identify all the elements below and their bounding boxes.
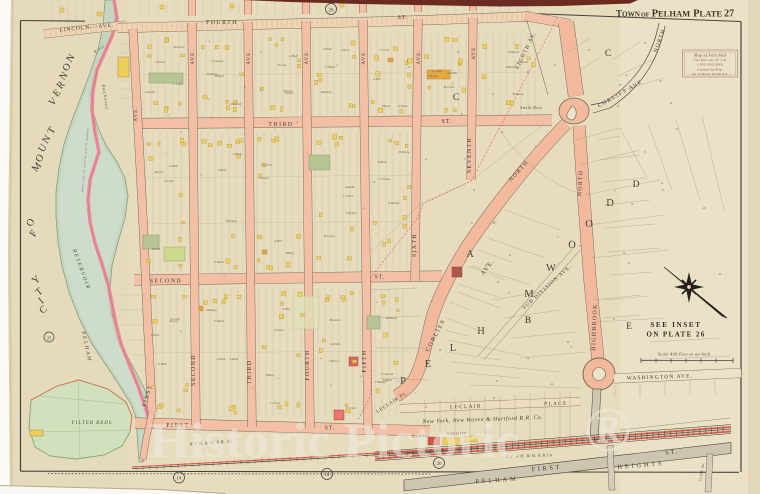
svg-text:C: C: [453, 93, 459, 103]
svg-text:T.Peck: T.Peck: [285, 91, 294, 95]
svg-text:ST.: ST.: [398, 15, 409, 21]
svg-text:AVE.: AVE.: [190, 49, 196, 64]
svg-text:G.Hall: G.Hall: [289, 54, 298, 58]
svg-text:F.Wood: F.Wood: [213, 319, 224, 323]
svg-text:AVE.: AVE.: [304, 49, 310, 64]
svg-text:FOURTH: FOURTH: [305, 349, 311, 380]
svg-text:M.Lewis: M.Lewis: [323, 234, 336, 238]
svg-text:E.Dean: E.Dean: [397, 104, 408, 108]
svg-text:L: L: [450, 343, 456, 354]
svg-text:C.Clark: C.Clark: [432, 69, 443, 73]
svg-text:ST.: ST.: [442, 119, 453, 125]
svg-text:W.Reid: W.Reid: [215, 74, 224, 78]
svg-text:F.Wood: F.Wood: [324, 65, 335, 69]
svg-text:C.Ford: C.Ford: [379, 48, 389, 52]
svg-text:M: M: [524, 289, 534, 300]
svg-text:D.Case: D.Case: [169, 317, 180, 321]
svg-text:AVE.: AVE.: [361, 49, 367, 64]
svg-text:Engineering Bldg.: Engineering Bldg.: [696, 67, 722, 71]
svg-text:M.Lewis: M.Lewis: [329, 318, 342, 322]
svg-text:J.Coutant: J.Coutant: [516, 60, 529, 64]
svg-text:SECOND: SECOND: [150, 279, 182, 285]
svg-text:W.Reid: W.Reid: [506, 65, 515, 69]
svg-text:THIRD: THIRD: [247, 360, 253, 385]
svg-text:C.Clark: C.Clark: [346, 406, 357, 410]
svg-text:A.Hill: A.Hill: [281, 307, 290, 311]
svg-text:AVE.: AVE.: [246, 49, 252, 64]
svg-text:AVE.: AVE.: [471, 44, 477, 59]
svg-text:J.Brown: J.Brown: [329, 359, 340, 363]
svg-text:A.Hill: A.Hill: [273, 239, 282, 243]
svg-text:M.Lewis: M.Lewis: [443, 85, 456, 89]
svg-text:®: ®: [584, 395, 631, 465]
svg-text:E.Dean: E.Dean: [273, 328, 284, 332]
svg-text:J.Bonney: J.Bonney: [205, 308, 217, 312]
svg-text:F.Wood: F.Wood: [213, 260, 224, 264]
svg-text:M.Lewis: M.Lewis: [173, 45, 186, 49]
svg-text:E.Barker: E.Barker: [387, 201, 400, 205]
svg-text:J.Coutant: J.Coutant: [211, 59, 224, 63]
svg-text:R.Lyon: R.Lyon: [153, 170, 163, 174]
svg-text:H.Young: H.Young: [512, 92, 524, 96]
svg-text:J.Brown: J.Brown: [428, 74, 439, 78]
svg-text:D.Case: D.Case: [163, 179, 174, 183]
svg-text:H.Young: H.Young: [385, 316, 397, 320]
svg-text:L.Platt: L.Platt: [232, 152, 242, 156]
svg-text:SECOND: SECOND: [191, 354, 197, 386]
svg-text:E: E: [626, 322, 632, 332]
svg-text:P.Berg: P.Berg: [265, 373, 275, 377]
svg-text:FOURTH: FOURTH: [206, 20, 238, 26]
svg-text:PLACE: PLACE: [544, 401, 568, 408]
svg-text:J.Coutant: J.Coutant: [381, 372, 394, 376]
svg-text:P.Berg: P.Berg: [285, 251, 295, 255]
svg-text:H.Young: H.Young: [398, 150, 410, 154]
svg-text:O: O: [585, 219, 593, 230]
svg-text:D: D: [633, 180, 640, 190]
svg-text:W.Reid: W.Reid: [383, 378, 392, 382]
svg-text:A.Smith: A.Smith: [344, 185, 355, 189]
svg-text:J.Brown: J.Brown: [346, 211, 357, 215]
svg-text:TOWNOFPELHAMPLATE27: TOWNOFPELHAMPLATE27: [616, 9, 734, 20]
svg-text:ST.: ST.: [665, 448, 679, 456]
svg-text:SEE INSET: SEE INSET: [650, 321, 701, 329]
svg-text:L.Platt: L.Platt: [216, 357, 226, 361]
svg-text:C.Clark: C.Clark: [343, 194, 354, 198]
svg-text:SEVENTH: SEVENTH: [467, 137, 473, 173]
svg-text:A.Smith: A.Smith: [144, 90, 155, 94]
svg-text:G.Hall: G.Hall: [169, 164, 178, 168]
svg-text:E.Barker: E.Barker: [229, 102, 242, 106]
svg-text:C: C: [605, 49, 611, 59]
svg-text:P.Berg: P.Berg: [381, 104, 391, 108]
svg-text:J.Brown: J.Brown: [155, 60, 166, 64]
svg-text:W.Reid: W.Reid: [378, 160, 387, 164]
svg-text:E: E: [425, 359, 431, 370]
svg-text:J.Bonney: J.Bonney: [320, 90, 332, 94]
svg-text:B: B: [525, 316, 531, 326]
svg-text:J.Coutant: J.Coutant: [378, 177, 391, 181]
svg-text:T.Peck: T.Peck: [152, 247, 161, 251]
svg-text:E.Barker: E.Barker: [507, 50, 520, 54]
svg-text:25: 25: [47, 336, 52, 341]
svg-text:26: 26: [329, 9, 335, 14]
svg-text:J.Bonney: J.Bonney: [225, 219, 237, 223]
svg-text:S.Hunt: S.Hunt: [218, 168, 227, 172]
svg-text:from Mon. Ave. for C.P.: from Mon. Ave. for C.P.: [694, 58, 727, 62]
svg-text:C.Ford: C.Ford: [262, 163, 272, 167]
svg-text:D.Case: D.Case: [276, 63, 287, 67]
svg-text:D: D: [606, 198, 614, 209]
svg-text:FILTER BEDS: FILTER BEDS: [71, 421, 113, 426]
svg-text:ST.: ST.: [375, 275, 386, 281]
svg-text:FIFTH: FIFTH: [362, 349, 368, 372]
svg-text:Map of Fairchild: Map of Fairchild: [693, 53, 727, 58]
svg-text:G.Hall: G.Hall: [158, 362, 167, 366]
svg-text:THIRD: THIRD: [268, 122, 293, 128]
svg-text:LECLAIR: LECLAIR: [450, 403, 482, 410]
svg-text:AVE.: AVE.: [133, 106, 139, 121]
svg-text:Op. of Mount Vernon N.Y.: Op. of Mount Vernon N.Y.: [692, 72, 728, 76]
svg-text:Smith Bros.: Smith Bros.: [520, 105, 544, 110]
svg-text:P: P: [400, 376, 406, 387]
svg-text:Historic Pictoric: Historic Pictoric: [149, 412, 519, 468]
svg-text:S.Hunt: S.Hunt: [230, 357, 239, 361]
svg-text:ON PLATE 26: ON PLATE 26: [646, 331, 705, 339]
svg-text:14: 14: [177, 477, 183, 482]
svg-text:A.Smith: A.Smith: [329, 342, 340, 346]
svg-text:AVE.: AVE.: [416, 49, 422, 64]
svg-text:A: A: [466, 249, 474, 260]
svg-text:C.Ford: C.Ford: [270, 401, 280, 405]
svg-text:A.Smith: A.Smith: [446, 71, 457, 75]
svg-text:S.Hunt: S.Hunt: [341, 48, 350, 52]
svg-text:W: W: [546, 263, 556, 274]
svg-text:E.Dean: E.Dean: [258, 176, 269, 180]
svg-text:T.Peck: T.Peck: [151, 333, 160, 337]
svg-text:CIVIL ENGINEER: CIVIL ENGINEER: [697, 63, 723, 67]
svg-text:H: H: [477, 326, 485, 337]
svg-text:Scale 400 Feet to an Inch: Scale 400 Feet to an Inch: [658, 352, 711, 357]
svg-text:C.Clark: C.Clark: [173, 82, 184, 86]
svg-text:L.Platt: L.Platt: [322, 47, 332, 51]
svg-text:A.Hill: A.Hill: [372, 77, 381, 81]
svg-text:14: 14: [325, 473, 331, 478]
